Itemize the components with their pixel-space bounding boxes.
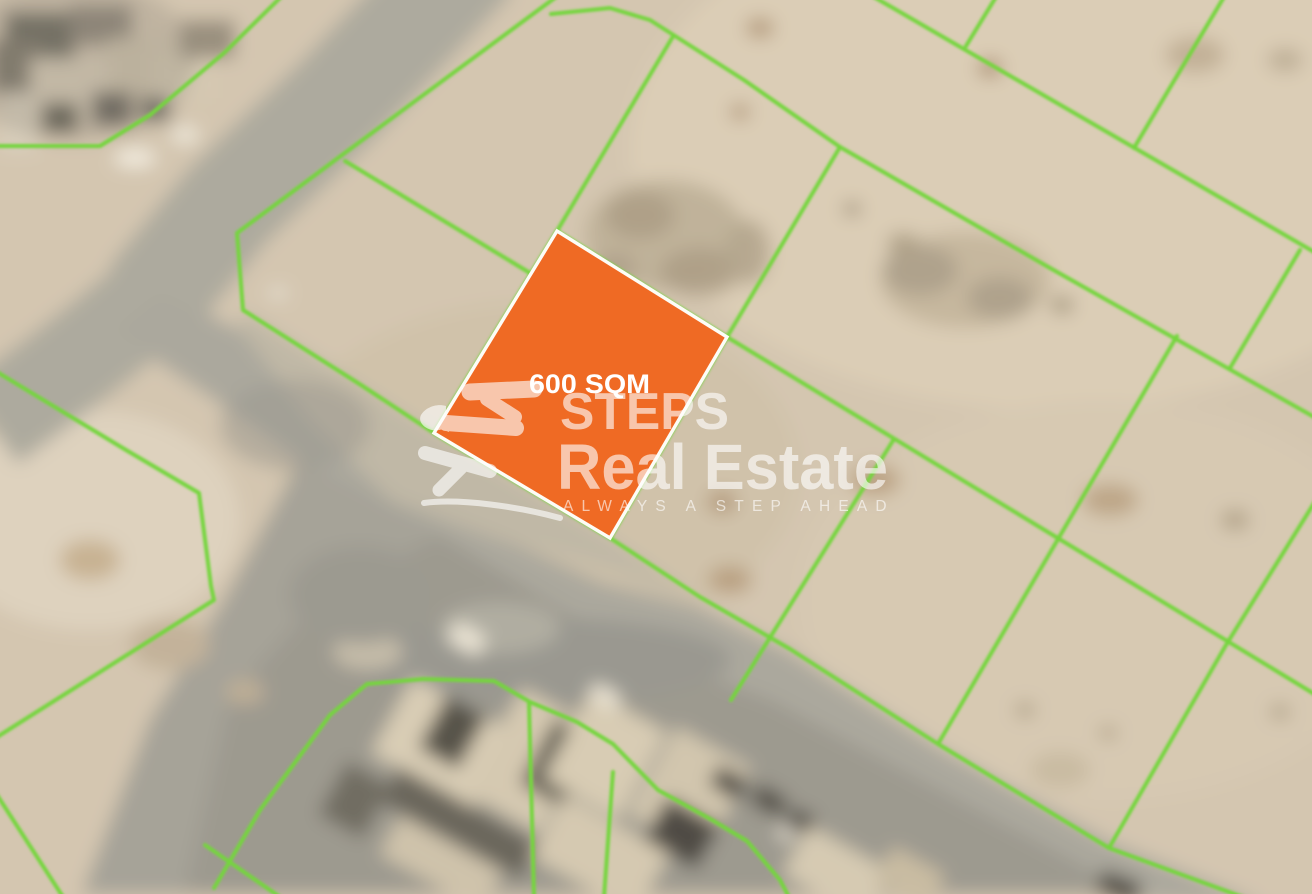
svg-text:ALWAYS A STEP AHEAD: ALWAYS A STEP AHEAD — [563, 498, 895, 515]
svg-text:600 SQM: 600 SQM — [529, 369, 650, 399]
svg-text:Real Estate: Real Estate — [557, 431, 888, 503]
